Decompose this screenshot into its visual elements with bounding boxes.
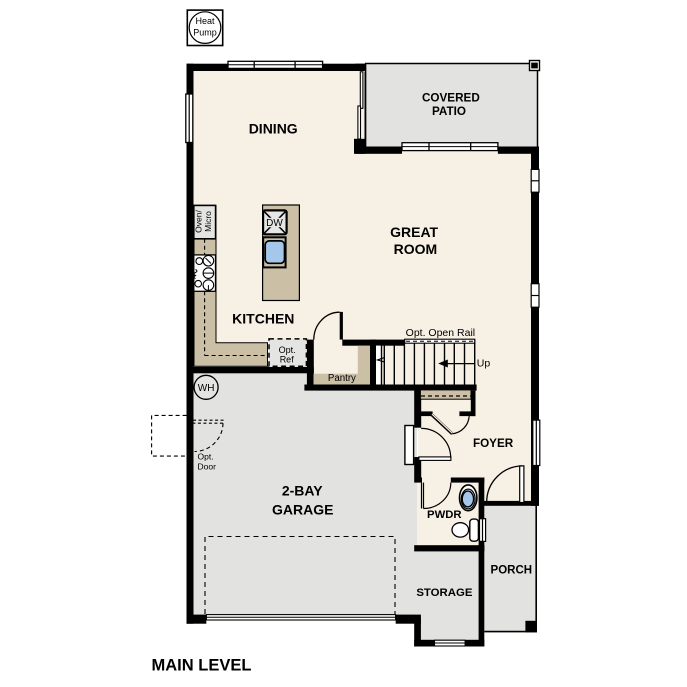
svg-text:PORCH: PORCH xyxy=(491,564,533,576)
svg-text:FOYER: FOYER xyxy=(473,437,514,450)
svg-text:DINING: DINING xyxy=(249,120,298,136)
svg-text:WH: WH xyxy=(198,383,215,394)
svg-text:Opt. Open Rail: Opt. Open Rail xyxy=(406,327,475,339)
svg-text:Opt.: Opt. xyxy=(279,345,296,355)
svg-text:ROOM: ROOM xyxy=(394,241,438,257)
svg-text:GARAGE: GARAGE xyxy=(272,501,333,517)
svg-text:GREAT: GREAT xyxy=(390,224,438,240)
svg-text:MAIN LEVEL: MAIN LEVEL xyxy=(152,656,252,674)
svg-text:PWDR: PWDR xyxy=(427,509,462,521)
svg-text:Ref: Ref xyxy=(280,355,295,365)
svg-text:DW: DW xyxy=(266,218,283,229)
svg-text:STORAGE: STORAGE xyxy=(416,587,473,599)
svg-text:Pump: Pump xyxy=(193,28,217,38)
svg-text:Door: Door xyxy=(198,462,217,472)
svg-text:2-BAY: 2-BAY xyxy=(282,483,323,499)
svg-text:Heat: Heat xyxy=(195,16,215,26)
svg-text:Pantry: Pantry xyxy=(328,373,356,384)
svg-text:Opt.: Opt. xyxy=(198,452,214,462)
svg-text:Micro: Micro xyxy=(203,211,213,232)
svg-text:Oven/: Oven/ xyxy=(194,210,204,233)
svg-text:KITCHEN: KITCHEN xyxy=(232,311,294,327)
svg-text:Up: Up xyxy=(477,357,491,369)
svg-text:COVERED: COVERED xyxy=(422,91,480,104)
svg-text:PATIO: PATIO xyxy=(432,105,466,118)
